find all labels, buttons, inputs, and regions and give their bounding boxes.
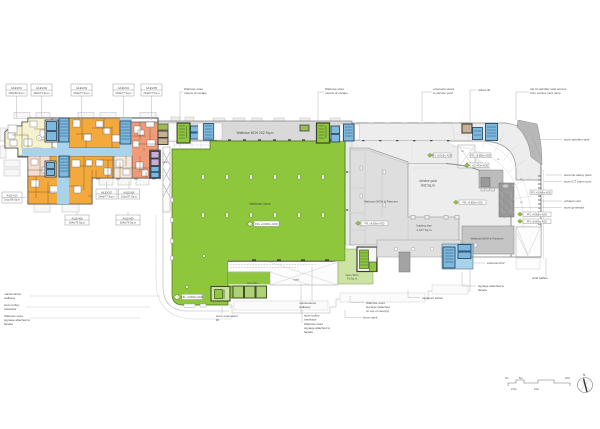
svg-text:store life safety plant: store life safety plant: [564, 173, 592, 177]
svg-text:2b4p/77 Sq.m: 2b4p/77 Sq.m: [73, 91, 89, 95]
svg-text:Waitrose store: Waitrose store: [249, 202, 270, 206]
svg-text:facade: facade: [4, 322, 13, 326]
svg-text:store evacuation: store evacuation: [216, 314, 238, 318]
svg-text:void: void: [163, 160, 168, 164]
svg-text:A/LEV/06: A/LEV/06: [124, 191, 136, 195]
svg-text:FFL +9.800m AOD: FFL +9.800m AOD: [463, 202, 483, 205]
svg-text:facade: facade: [304, 330, 313, 334]
svg-text:from service yard ramp: from service yard ramp: [530, 91, 561, 95]
svg-text:FFL +8.985m AOD: FFL +8.985m AOD: [471, 155, 491, 158]
svg-text:A/LEV/08: A/LEV/08: [72, 217, 84, 221]
svg-text:2.5m: 2.5m: [511, 387, 517, 391]
svg-text:A/LEV/05: A/LEV/05: [146, 86, 158, 90]
svg-text:means of escape: means of escape: [184, 91, 207, 95]
svg-text:facade: facade: [478, 288, 487, 292]
svg-text:on top of canopy): on top of canopy): [366, 309, 389, 313]
svg-text:A/LEV/01: A/LEV/01: [11, 86, 23, 90]
svg-text:lift: lift: [216, 318, 219, 322]
svg-text:FFL +0.600m AOD: FFL +0.600m AOD: [255, 222, 277, 226]
svg-text:external AOV: external AOV: [487, 261, 505, 265]
svg-text:Waitrose BOH & Partners: Waitrose BOH & Partners: [471, 237, 504, 241]
svg-text:A/LEV/03: A/LEV/03: [76, 86, 88, 90]
svg-text:Waitrose BOH 202 Sq.m: Waitrose BOH 202 Sq.m: [237, 131, 274, 135]
svg-text:0m: 0m: [505, 376, 509, 380]
svg-text:A/LEV/04: A/LEV/04: [118, 86, 130, 90]
svg-text:76 Sq.m: 76 Sq.m: [347, 277, 358, 281]
svg-text:wind baffles: wind baffles: [532, 276, 548, 280]
svg-text:A/LEV/07: A/LEV/07: [101, 191, 113, 195]
svg-text:to service yard: to service yard: [433, 91, 453, 95]
svg-text:10m: 10m: [534, 387, 539, 391]
svg-text:walkway: walkway: [4, 296, 16, 300]
svg-text:FFL +8.985m AOD: FFL +8.985m AOD: [527, 214, 547, 217]
svg-text:2b4p/77 Sq.m: 2b4p/77 Sq.m: [98, 195, 114, 199]
svg-text:store lifts: store lifts: [246, 281, 258, 285]
svg-text:means of escape: means of escape: [325, 91, 348, 95]
svg-text:2b4p/76 Sq.m: 2b4p/76 Sq.m: [69, 221, 85, 225]
svg-text:FFL +0.600m AOD: FFL +0.600m AOD: [181, 295, 203, 299]
svg-text:1b2p/50 Sq.m: 1b2p/50 Sq.m: [8, 91, 24, 95]
svg-text:1b2p/71 Sq.m: 1b2p/71 Sq.m: [33, 91, 49, 95]
svg-text:1b1p/37 Sq.m: 1b1p/37 Sq.m: [121, 195, 137, 199]
svg-text:store ICT plant room: store ICT plant room: [564, 180, 592, 184]
svg-text:20m: 20m: [565, 376, 570, 380]
svg-text:FFL +9.985m AOD: FFL +9.985m AOD: [531, 192, 551, 195]
svg-text:FFL +8.600m AOD: FFL +8.600m AOD: [527, 221, 547, 224]
svg-text:store generator: store generator: [564, 206, 584, 210]
svg-text:service yard: service yard: [419, 179, 436, 183]
svg-text:travelator: travelator: [304, 318, 317, 322]
svg-text:2b4p/74 Sq.m: 2b4p/74 Sq.m: [120, 221, 136, 225]
svg-text:FFL +8.600m AOD: FFL +8.600m AOD: [365, 223, 385, 226]
svg-text:void: void: [293, 278, 299, 282]
svg-text:canopies below: canopies below: [422, 296, 444, 300]
svg-text:1b1p/38 Sq.m: 1b1p/38 Sq.m: [4, 198, 20, 202]
svg-text:5m: 5m: [519, 376, 523, 380]
svg-text:1,107 Sq.m: 1,107 Sq.m: [416, 228, 432, 232]
svg-text:2b4p/77 Sq.m: 2b4p/77 Sq.m: [143, 91, 159, 95]
svg-text:842 Sq.m: 842 Sq.m: [421, 184, 435, 188]
svg-text:2b4p/77 Sq.m: 2b4p/77 Sq.m: [115, 91, 131, 95]
svg-text:store sprinkler tank: store sprinkler tank: [564, 138, 590, 142]
svg-text:A/LEV/02: A/LEV/02: [36, 86, 48, 90]
svg-text:travelator: travelator: [4, 307, 17, 311]
svg-text:FFL +10.470m AOD: FFL +10.470m AOD: [467, 165, 489, 168]
svg-text:Waitrose BOH & Partners: Waitrose BOH & Partners: [364, 200, 399, 204]
svg-text:brise soleil: brise soleil: [363, 316, 378, 320]
svg-text:loading bay: loading bay: [416, 224, 432, 228]
svg-text:exhaust vent: exhaust vent: [564, 199, 581, 203]
svg-text:FFL +8.600m AOD: FFL +8.600m AOD: [432, 155, 452, 158]
svg-text:A/LEV/09: A/LEV/09: [123, 217, 135, 221]
svg-text:refuse lift: refuse lift: [478, 88, 490, 92]
svg-text:A/LEV/10: A/LEV/10: [7, 194, 19, 198]
